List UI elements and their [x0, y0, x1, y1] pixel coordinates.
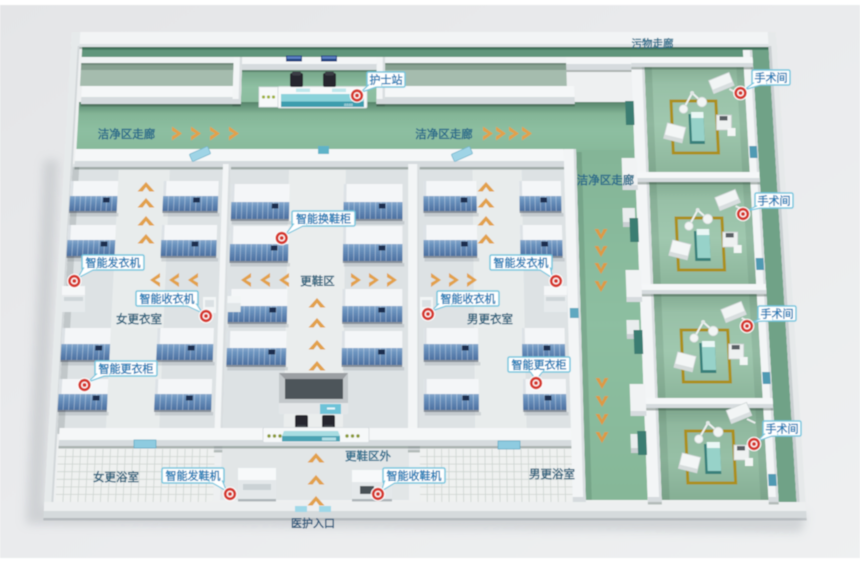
svg-text:更鞋区: 更鞋区 [300, 274, 335, 288]
svg-text:医护入口: 医护入口 [291, 516, 335, 530]
svg-text:智能发衣机: 智能发衣机 [86, 256, 141, 270]
svg-text:女更衣室: 女更衣室 [116, 312, 162, 326]
svg-text:护士站: 护士站 [370, 73, 403, 87]
svg-text:智能更衣柜: 智能更衣柜 [99, 362, 154, 376]
svg-text:污物走廊: 污物走廊 [632, 37, 674, 50]
svg-text:女更浴室: 女更浴室 [93, 470, 139, 484]
svg-text:洁净区走廊: 洁净区走廊 [98, 127, 156, 141]
svg-text:8888: 8888 [344, 102, 354, 107]
svg-text:洁净区走廊: 洁净区走廊 [577, 173, 635, 187]
svg-text:手术间: 手术间 [755, 71, 788, 85]
svg-text:手术间: 手术间 [761, 307, 794, 321]
svg-text:智能收衣机: 智能收衣机 [140, 292, 195, 306]
svg-text:手术间: 手术间 [758, 194, 791, 208]
svg-text:智能收衣机: 智能收衣机 [441, 292, 496, 306]
svg-text:智能更衣柜: 智能更衣柜 [512, 358, 567, 372]
svg-text:男更衣室: 男更衣室 [467, 312, 513, 326]
svg-text:更鞋区外: 更鞋区外 [345, 449, 391, 463]
svg-text:智能发鞋机: 智能发鞋机 [166, 469, 221, 483]
svg-text:男更浴室: 男更浴室 [529, 467, 575, 481]
svg-text:智能发衣机: 智能发衣机 [494, 256, 549, 270]
svg-text:洁净区走廊: 洁净区走廊 [415, 127, 473, 141]
svg-text:智能收鞋机: 智能收鞋机 [387, 469, 442, 483]
svg-text:手术间: 手术间 [766, 422, 799, 436]
svg-text:智能换鞋柜: 智能换鞋柜 [296, 212, 351, 226]
